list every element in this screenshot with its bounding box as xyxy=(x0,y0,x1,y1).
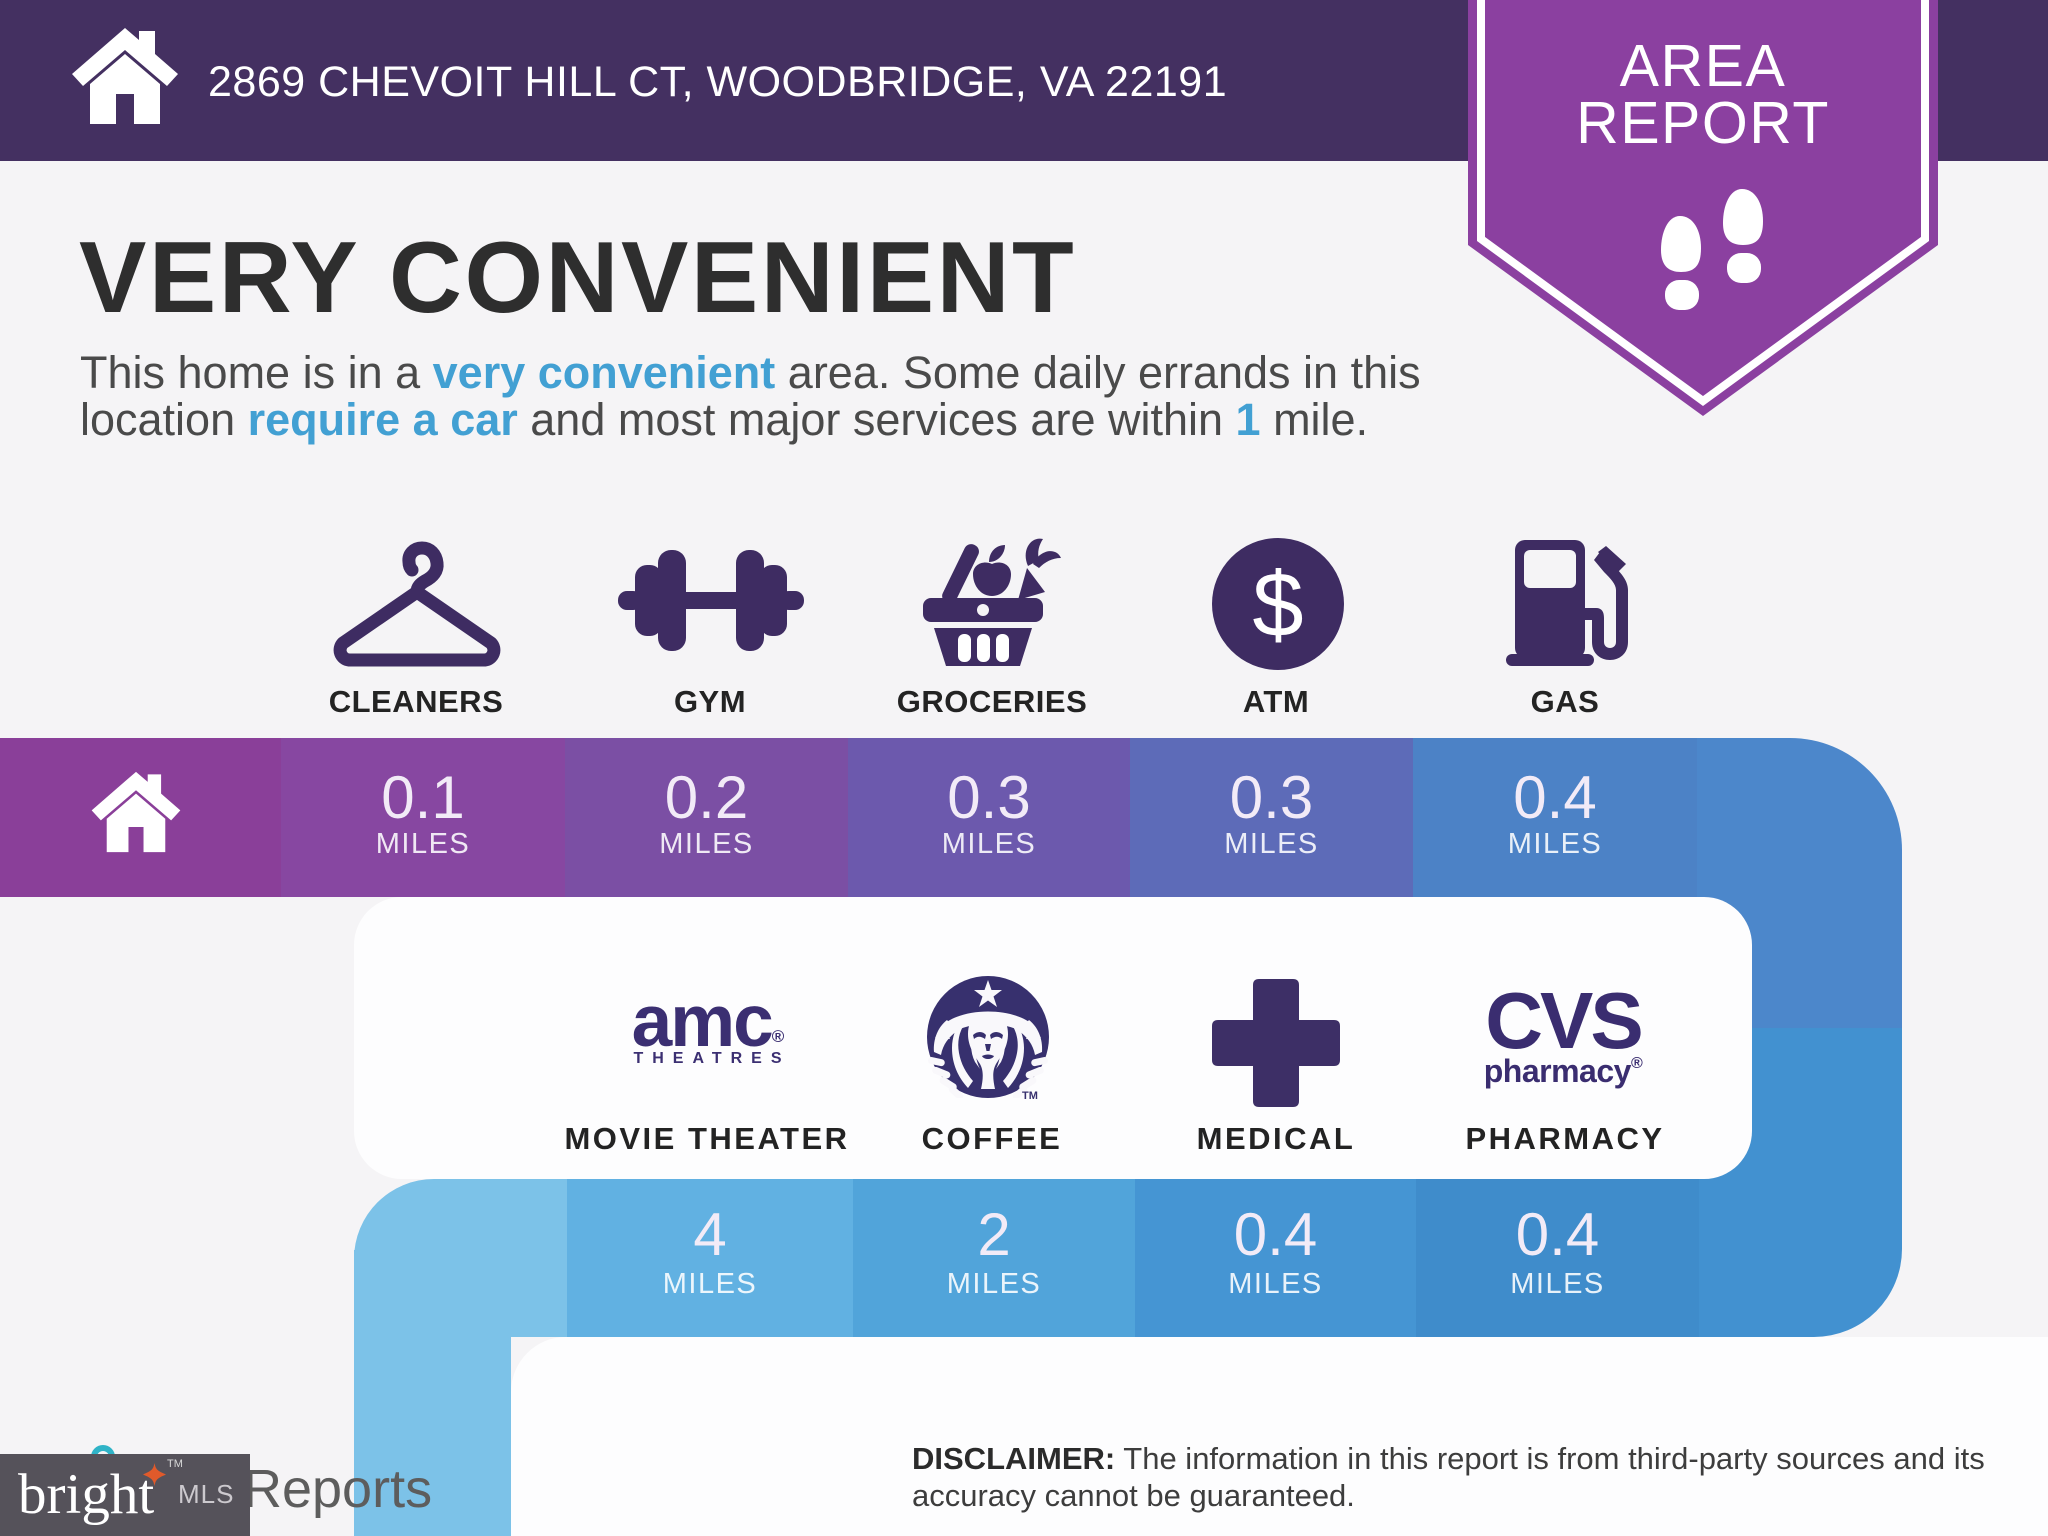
svg-text:$: $ xyxy=(1252,554,1303,656)
